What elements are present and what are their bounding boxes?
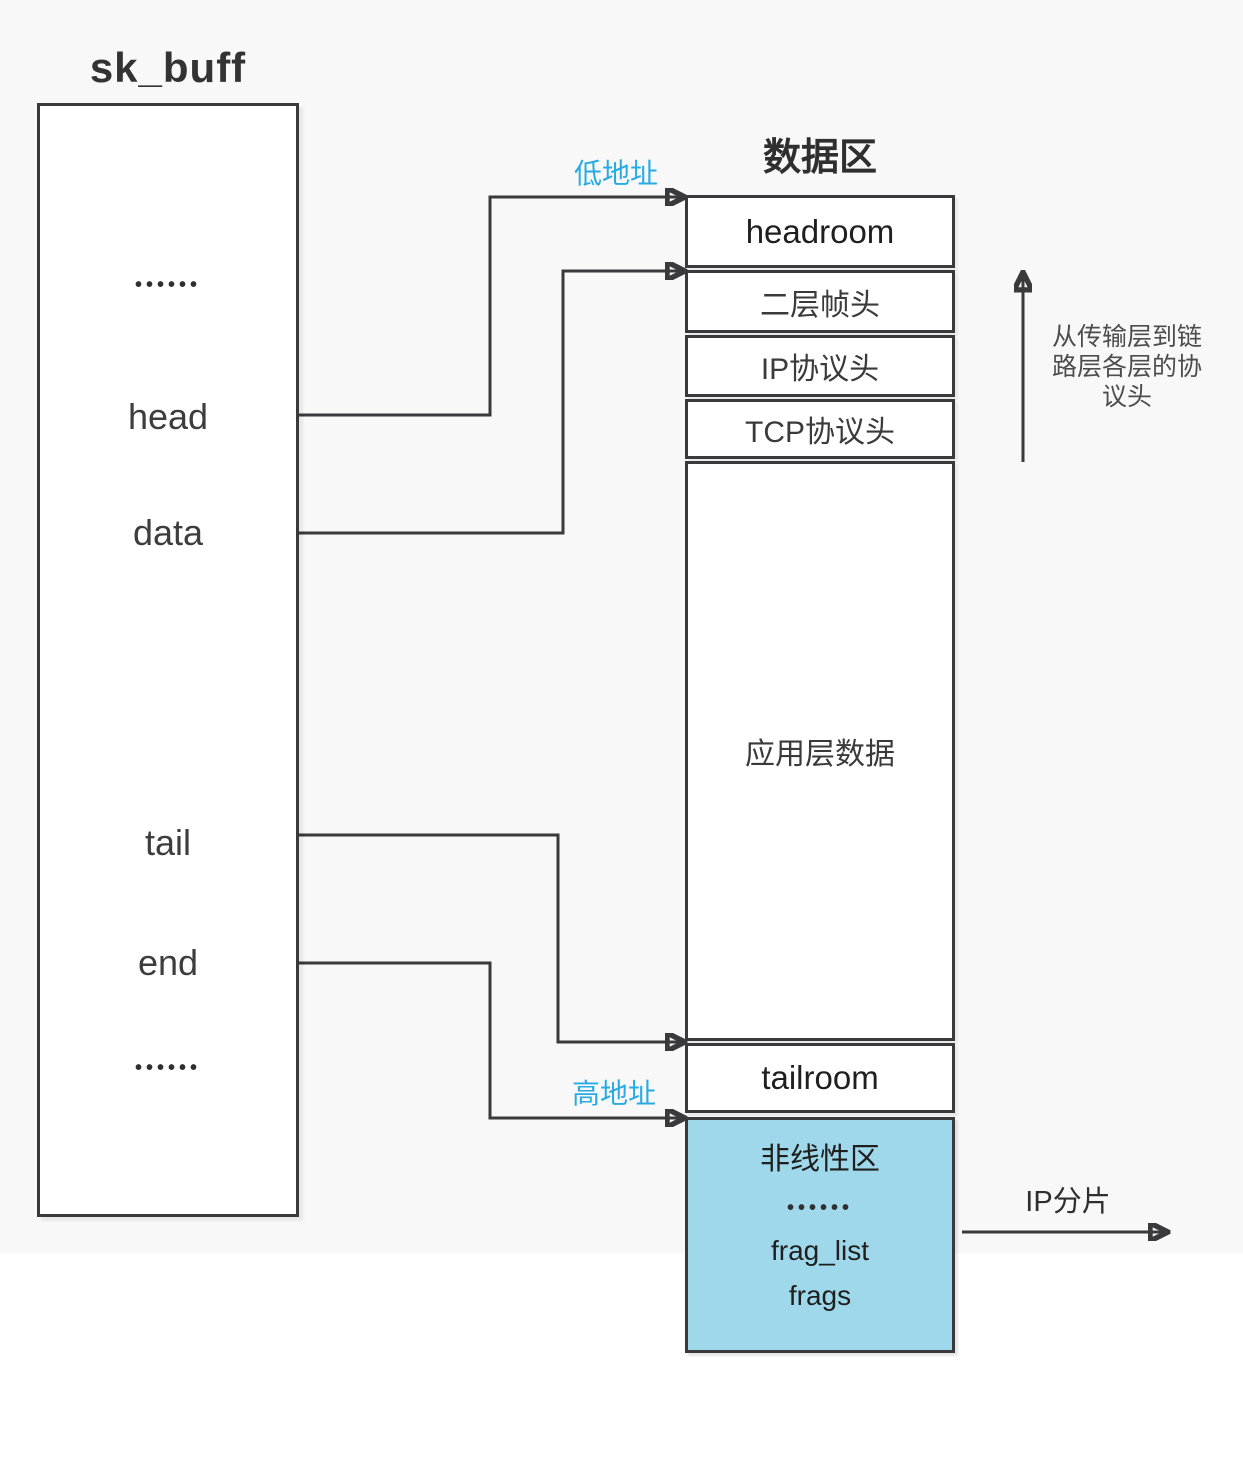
nonlinear-area-title: 非线性区 [688, 1140, 952, 1180]
skbuff-field-data: data [40, 511, 296, 555]
row-l2-frame-header: 二层帧头 [685, 270, 955, 333]
row-ip-header: IP协议头 [685, 335, 955, 397]
row-headroom: headroom [685, 195, 955, 268]
skbuff-field-ellipsis-bottom: •••••• [40, 1046, 296, 1090]
skbuff-field-tail: tail [40, 821, 296, 865]
skbuff-field-end: end [40, 941, 296, 985]
high-address-label: 高地址 [566, 1072, 662, 1112]
nonlinear-area-box: 非线性区 •••••• frag_list frags [685, 1117, 955, 1353]
diagram-canvas: sk_buff •••••• head data tail end ••••••… [0, 0, 1243, 1467]
row-app-layer-data: 应用层数据 [685, 461, 955, 1041]
nonlinear-item-frag-list: frag_list [688, 1228, 952, 1273]
nonlinear-item-frags: frags [688, 1273, 952, 1318]
skbuff-title: sk_buff [37, 44, 299, 92]
protocol-layers-note: 从传输层到链 路层各层的协 议头 [1047, 322, 1207, 412]
row-tcp-header: TCP协议头 [685, 399, 955, 459]
row-tailroom: tailroom [685, 1043, 955, 1113]
nonlinear-ellipsis: •••••• [688, 1188, 952, 1228]
skbuff-box: •••••• head data tail end •••••• [37, 103, 299, 1217]
data-area-title: 数据区 [685, 126, 955, 181]
low-address-label: 低地址 [568, 152, 664, 192]
skbuff-field-head: head [40, 395, 296, 439]
ip-fragment-label: IP分片 [1018, 1178, 1118, 1220]
skbuff-field-ellipsis-top: •••••• [40, 263, 296, 307]
